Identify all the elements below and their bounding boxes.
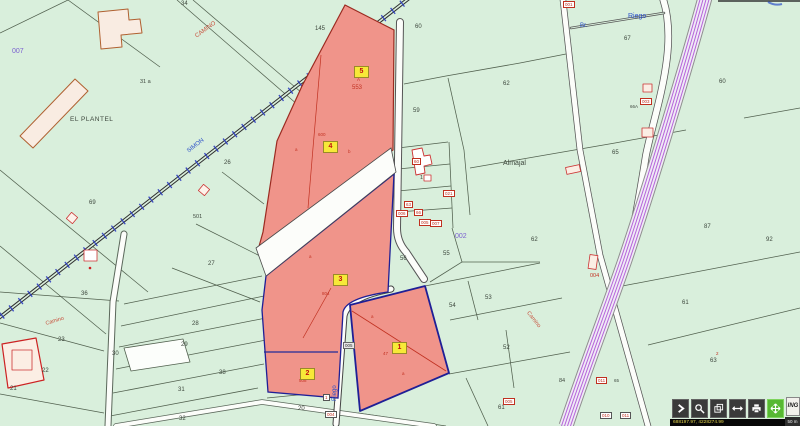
ref-600: 600 (318, 133, 326, 138)
ref-box-1: 1 (323, 394, 330, 401)
ref-501: 501 (193, 215, 202, 221)
parcel-62b: 62 (531, 237, 538, 243)
ref-box-63: 63 (404, 201, 413, 208)
ref-box-66: 66 (414, 209, 423, 216)
ref-a3: a (371, 315, 374, 320)
ref-box-011: 011 (620, 412, 631, 419)
parcel-badge-1[interactable]: 1 (392, 342, 407, 354)
ref-box-005: 005 (419, 219, 431, 226)
parcel-36: 36 (81, 291, 88, 297)
road-camino-right: Camino (525, 311, 541, 329)
parcel-87: 87 (704, 224, 711, 230)
parcel-145: 145 (315, 26, 325, 32)
ref-box-001: 001 (563, 1, 575, 8)
expand-icon (675, 403, 686, 414)
parcel-63: 63 (710, 358, 717, 364)
print-icon (751, 403, 762, 414)
riego-vertical: Riego (332, 385, 338, 401)
toolbar-print-button[interactable] (748, 399, 765, 418)
ref-a2: a (309, 255, 312, 260)
layers-icon (713, 403, 724, 414)
ref-553: 553 (352, 85, 362, 91)
parcel-61: 61 (682, 300, 689, 306)
ref-a4: a (402, 372, 405, 377)
parcel-29: 29 (181, 342, 188, 348)
sheet-002: 002 (455, 233, 467, 240)
parcel-34: 34 (181, 1, 188, 7)
railway-simon: SIMON (186, 138, 205, 155)
parcel-27: 27 (208, 261, 215, 267)
riego-top: Riego (628, 13, 646, 20)
ref-a-top: A (357, 78, 360, 83)
parcel-32: 32 (179, 416, 186, 422)
ref-2r: 2 (716, 352, 719, 357)
place-el-plantel: EL PLANTEL (70, 117, 113, 124)
parcel-26: 26 (224, 160, 231, 166)
ref-box-004: 004 (325, 411, 337, 418)
parcel-31b: 31 (178, 387, 185, 393)
parcel-badge-4[interactable]: 4 (323, 141, 338, 153)
parcel-20: 20 (298, 406, 305, 412)
br-label: Br. (580, 23, 587, 29)
ref-box-007: 007 (430, 220, 442, 227)
parcel-60: 60 (415, 24, 422, 30)
ref-66a: 66A (630, 105, 638, 110)
map-viewer: 34145CAMINO007EL PLANTEL31 aSIMON6067Rie… (0, 0, 800, 426)
ref-1-cluster: 1 (420, 176, 423, 182)
toolbar-measure-button[interactable] (729, 399, 746, 418)
parcel-69: 69 (89, 200, 96, 206)
parcel-62: 62 (503, 81, 510, 87)
parcel-28: 28 (192, 321, 199, 327)
ref-b1: b (348, 150, 351, 155)
parcel-30: 30 (112, 351, 119, 357)
parcel-31a: 31 a (140, 80, 151, 86)
parcel-56: 56 (400, 256, 407, 262)
ref-box-021: 021 (443, 190, 455, 197)
place-almajal: Almajal (503, 160, 526, 167)
sheet-007: 007 (12, 48, 24, 55)
parcel-65: 65 (612, 150, 619, 156)
parcel-92: 92 (766, 237, 773, 243)
ref-804: 804 (322, 292, 330, 297)
ref-004: 004 (590, 274, 599, 280)
ref-65b: 65 (614, 379, 619, 384)
pan-icon (770, 403, 781, 414)
parcel-84: 84 (559, 379, 565, 385)
map-labels-layer: 34145CAMINO007EL PLANTEL31 aSIMON6067Rie… (0, 0, 800, 426)
road-camino-left: Camino (45, 317, 65, 328)
measure-icon (732, 403, 743, 414)
parcel-55: 55 (443, 251, 450, 257)
ref-box-005: 005 (343, 342, 355, 349)
parcel-53: 53 (485, 295, 492, 301)
toolbar-pan-button[interactable] (767, 399, 784, 418)
parcel-52: 52 (503, 345, 510, 351)
ref-box-010: 010 (600, 412, 612, 419)
ing-button[interactable]: ING (786, 397, 800, 416)
parcel-67: 67 (624, 36, 631, 42)
ref-box-011: 011 (596, 377, 607, 384)
ref-47: 47 (383, 352, 388, 357)
ref-box-60: 60 (412, 158, 421, 165)
parcel-23: 23 (58, 337, 65, 343)
toolbar-zoom-button[interactable] (691, 399, 708, 418)
scale-label: 50 m (785, 417, 800, 426)
ref-box-005: 005 (503, 398, 515, 405)
parcel-54: 54 (449, 303, 456, 309)
ref-a1: a (295, 148, 298, 153)
parcel-38: 38 (219, 370, 226, 376)
toolbar-expand-button[interactable] (672, 399, 689, 418)
parcel-61b: 61 (498, 405, 505, 411)
ref-box-003: 003 (640, 98, 652, 105)
map-toolbar (670, 399, 800, 420)
road-camino-top: CAMINO (194, 20, 217, 39)
toolbar-layers-button[interactable] (710, 399, 727, 418)
zoom-icon (694, 403, 705, 414)
parcel-badge-3[interactable]: 3 (333, 274, 348, 286)
ref-box-006: 006 (396, 210, 408, 217)
parcel-59: 59 (413, 108, 420, 114)
parcel-22: 22 (42, 368, 49, 374)
parcel-badge-5[interactable]: 5 (354, 66, 369, 78)
coordinate-readout: 688197.97, 4228274.99 (670, 419, 788, 426)
parcel-60b: 60 (719, 79, 726, 85)
parcel-21: 21 (10, 386, 17, 392)
parcel-badge-2[interactable]: 2 (300, 368, 315, 380)
